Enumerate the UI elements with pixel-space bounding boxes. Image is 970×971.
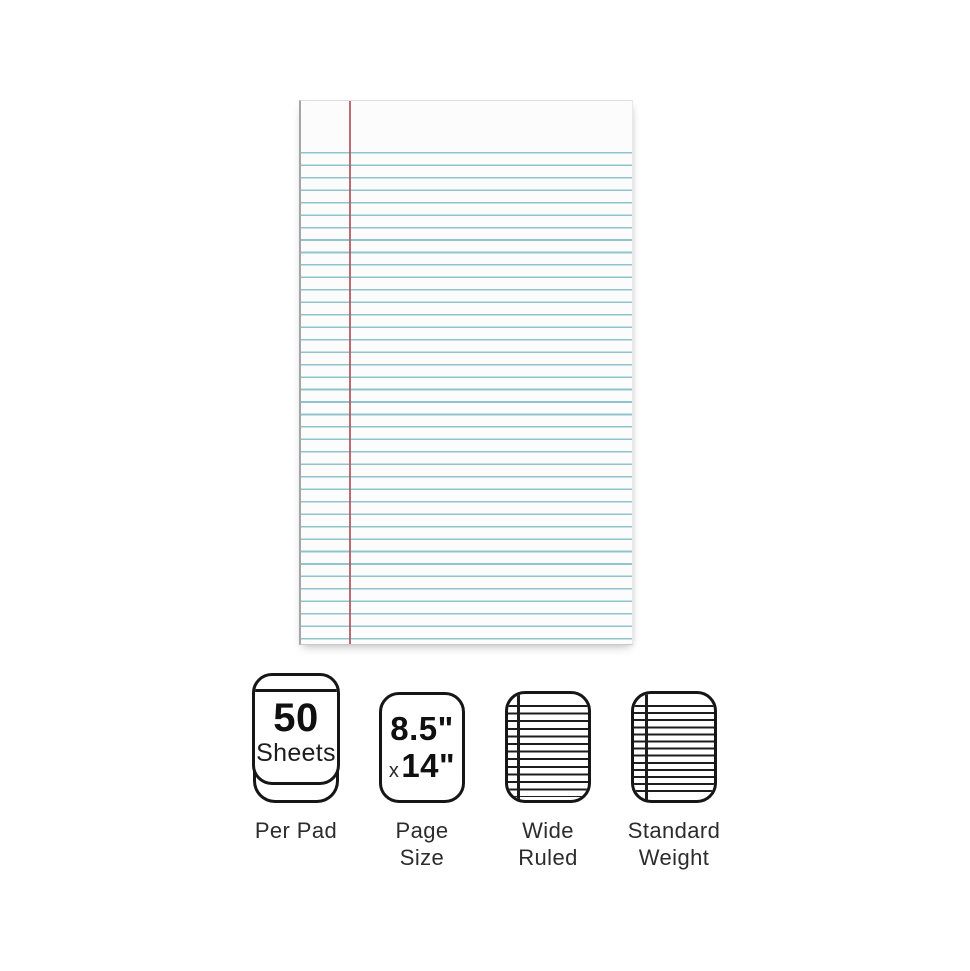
page-height-line: x14": [389, 748, 455, 784]
page-width-value: 8.5": [390, 711, 454, 747]
wide-ruled-paper-icon: [505, 691, 591, 803]
sheet-count-value: 50: [255, 698, 337, 738]
times-symbol: x: [389, 760, 400, 782]
pad-body: 50 Sheets: [252, 673, 340, 785]
product-image: 50 Sheets Per Pad 8.5" x14" Page Size: [0, 0, 970, 971]
feature-badges-row: 50 Sheets Per Pad 8.5" x14" Page Size: [233, 670, 737, 872]
pad-binding-line: [252, 689, 340, 692]
feature-label-wide-ruled: Wide Ruled: [518, 818, 577, 872]
page-height-value: 14": [401, 747, 455, 784]
pad-stack-icon: 50 Sheets: [252, 673, 340, 803]
feature-label-page-size: Page Size: [396, 818, 449, 872]
feature-standard-weight: Standard Weight: [611, 670, 737, 872]
icon-slot: 8.5" x14": [359, 670, 485, 803]
icon-slot: [611, 670, 737, 803]
sheet-count-unit: Sheets: [255, 739, 337, 768]
pad-text: 50 Sheets: [255, 698, 337, 768]
feature-label-standard-weight: Standard Weight: [628, 818, 721, 872]
icon-slot: 50 Sheets: [233, 670, 359, 803]
legal-pad-sheet: [299, 100, 633, 645]
icon-margin-line: [645, 693, 648, 801]
margin-line: [349, 101, 351, 644]
icon-margin-line: [517, 693, 520, 801]
feature-page-size: 8.5" x14" Page Size: [359, 670, 485, 872]
feature-sheets-per-pad: 50 Sheets Per Pad: [233, 670, 359, 872]
page-size-icon: 8.5" x14": [379, 692, 465, 803]
standard-weight-paper-icon: [631, 691, 717, 803]
feature-wide-ruled: Wide Ruled: [485, 670, 611, 872]
icon-slot: [485, 670, 611, 803]
feature-label-per-pad: Per Pad: [255, 818, 337, 845]
